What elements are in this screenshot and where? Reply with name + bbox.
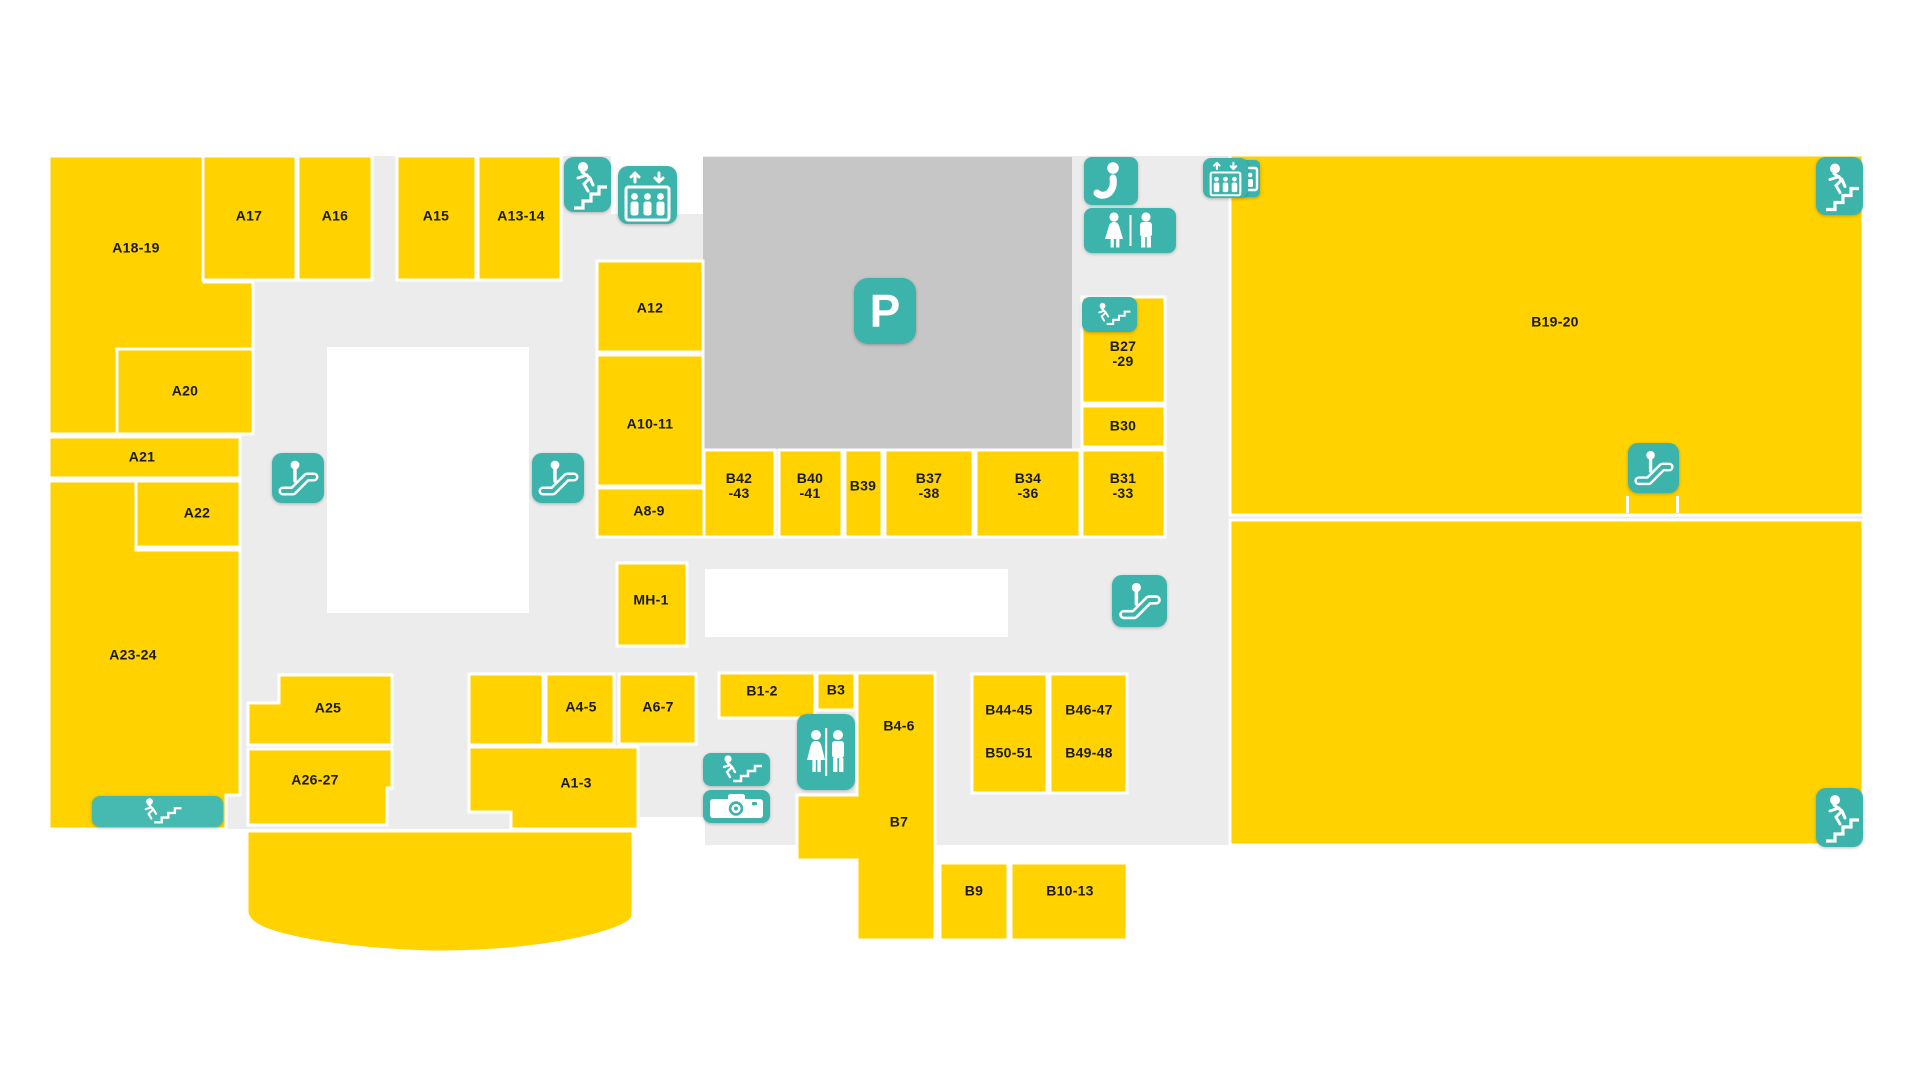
escalator-icon (1628, 443, 1679, 493)
store-block-A6-7[interactable] (619, 674, 696, 744)
escalator-icon (272, 453, 324, 503)
connector-mark (1626, 496, 1629, 513)
stairs-icon (1082, 297, 1137, 332)
store-block-B31-33[interactable] (1082, 450, 1165, 537)
store-block-food-curve[interactable] (247, 831, 633, 952)
store-block-A22[interactable] (136, 481, 240, 547)
store-block-unlabeled[interactable] (469, 674, 543, 745)
elevator-icon (1203, 158, 1248, 198)
stairs-icon (564, 157, 611, 212)
store-block-B30[interactable] (1082, 406, 1165, 447)
stairs-icon (1816, 157, 1863, 215)
store-block-A26-27[interactable] (248, 749, 392, 825)
floor-plan-shapes (0, 0, 1920, 1080)
store-block-A20[interactable] (117, 349, 253, 434)
mall-floor-plan: PA18-19A17A16A15A13-14A20A21A22A23-24A12… (0, 0, 1920, 1080)
store-block-MH-1[interactable] (617, 563, 687, 646)
restroom-icon (1084, 208, 1176, 253)
store-block-B34-36[interactable] (976, 450, 1080, 537)
camera-icon (703, 790, 770, 823)
store-block-A13-14[interactable] (478, 156, 561, 280)
escalator-icon (1112, 575, 1167, 627)
store-block-B19-20[interactable] (1230, 155, 1863, 515)
stairs-icon (703, 753, 770, 786)
escalator-icon (532, 453, 584, 503)
store-block-B42-43[interactable] (704, 450, 775, 537)
connector-mark (1676, 496, 1679, 513)
store-block-B9[interactable] (940, 863, 1008, 940)
store-block-B46-47-B49-48[interactable] (1050, 674, 1127, 793)
store-block-B3[interactable] (817, 673, 855, 710)
store-block-B39[interactable] (845, 450, 882, 537)
floor-cutout (327, 347, 529, 613)
store-block-A21[interactable] (49, 437, 240, 478)
store-block-A8-9[interactable] (597, 488, 704, 537)
store-block-B40-41[interactable] (779, 450, 842, 537)
parking-icon: P (854, 278, 916, 344)
store-block-A4-5[interactable] (546, 674, 614, 744)
stairs-icon (92, 796, 223, 827)
elevator-icon (618, 166, 677, 224)
store-block-A12[interactable] (597, 261, 703, 352)
information-icon (1084, 157, 1138, 205)
store-block-B1-2[interactable] (719, 673, 815, 718)
floor-cutout (640, 817, 705, 845)
store-block-A15[interactable] (397, 156, 476, 280)
svg-text:P: P (870, 285, 901, 337)
store-block-A10-11[interactable] (597, 355, 703, 486)
stairs-icon (1816, 788, 1863, 847)
store-block-B37-38[interactable] (885, 450, 973, 537)
store-block-B44-45-B50-51[interactable] (972, 674, 1047, 793)
store-block-B19-20-lower[interactable] (1230, 520, 1863, 845)
store-block-A17[interactable] (203, 156, 296, 280)
restroom-icon (797, 714, 855, 790)
store-block-A16[interactable] (298, 156, 372, 280)
store-block-B10-13[interactable] (1011, 863, 1127, 940)
floor-cutout (705, 569, 1008, 637)
